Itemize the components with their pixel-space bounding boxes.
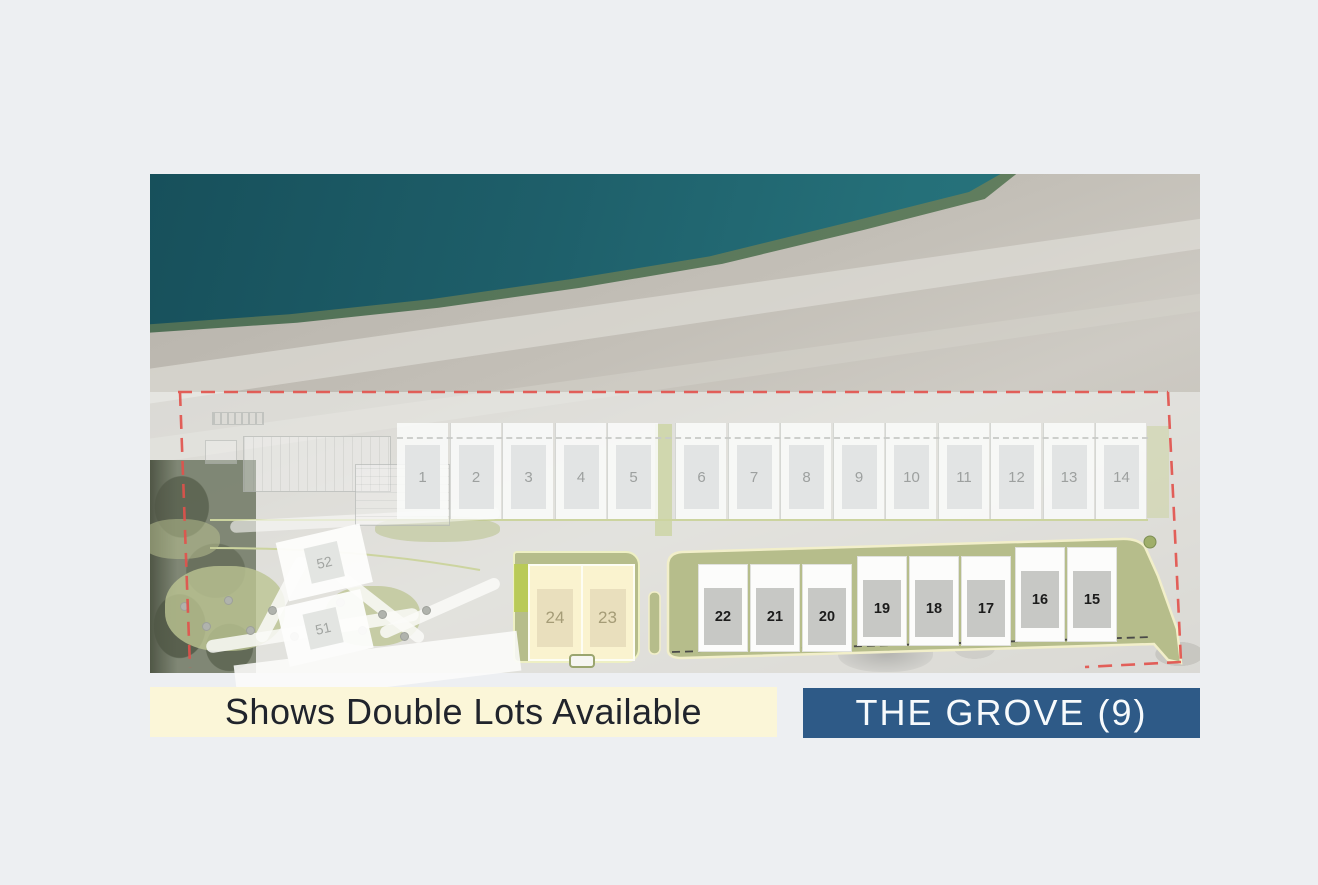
lot-number: 9 [842, 445, 877, 509]
double-lot-structure [569, 654, 595, 668]
tree-marker [422, 606, 431, 615]
lot-parcel: 24 [530, 566, 583, 659]
site-plan-aerial-photo: 1 2 3 4 5 6 7 8 9 10 11 12 13 14 22 21 2… [150, 174, 1200, 673]
landscape-patch [150, 519, 220, 559]
lot-number: 51 [302, 607, 343, 650]
lot-number: 2 [459, 445, 494, 509]
lot-number: 23 [590, 589, 626, 647]
lot-number: 21 [756, 588, 794, 645]
lot-number: 24 [537, 589, 573, 647]
tree-marker [202, 622, 211, 631]
legend-grove: THE GROVE (9) [803, 688, 1200, 738]
tree-marker [400, 632, 409, 641]
lot-number: 10 [894, 445, 929, 509]
lot-number: 17 [967, 580, 1005, 637]
lot-number: 20 [808, 588, 846, 645]
lot-parcel: 20 [802, 564, 852, 652]
lot-number: 3 [511, 445, 546, 509]
tree-marker [224, 596, 233, 605]
legend-double-lots: Shows Double Lots Available [150, 687, 777, 737]
lot-parcel: 17 [961, 556, 1011, 646]
grove-lot-row: 22 21 20 19 18 17 16 15 [698, 536, 1123, 671]
clubhouse-footprint [205, 440, 237, 464]
lot-number: 52 [304, 541, 345, 584]
lot-parcel: 21 [750, 564, 800, 652]
page: 1 2 3 4 5 6 7 8 9 10 11 12 13 14 22 21 2… [0, 0, 1318, 885]
lot-parcel: 23 [583, 566, 634, 659]
lot-number: 1 [405, 445, 440, 509]
lot-number: 11 [947, 445, 982, 509]
lot-number: 16 [1021, 571, 1059, 628]
lot-parcel: 16 [1015, 547, 1065, 642]
lot-parcel: 15 [1067, 547, 1117, 642]
lot-number: 5 [616, 445, 651, 509]
lot-number: 13 [1052, 445, 1087, 509]
lot-number: 22 [704, 588, 742, 645]
double-lot-green-patch [514, 564, 531, 612]
lot-number: 19 [863, 580, 901, 637]
setback-dashed-line [397, 437, 1148, 439]
double-lot-block: 24 23 [530, 566, 633, 659]
parking-row [212, 412, 264, 425]
lot-number: 4 [564, 445, 599, 509]
legend-double-lots-label: Shows Double Lots Available [225, 691, 702, 733]
lot-parcel: 19 [857, 556, 907, 646]
legend-grove-label: THE GROVE (9) [855, 692, 1147, 734]
lot-number: 18 [915, 580, 953, 637]
lot-number: 15 [1073, 571, 1111, 628]
lot-number: 6 [684, 445, 719, 509]
tree-marker [180, 602, 189, 611]
lot-number: 14 [1104, 445, 1139, 509]
lot-number: 8 [789, 445, 824, 509]
lot-parcel: 22 [698, 564, 748, 652]
tree-marker [246, 626, 255, 635]
lot-parcel: 18 [909, 556, 959, 646]
lot-number: 7 [737, 445, 772, 509]
lot-number: 12 [999, 445, 1034, 509]
